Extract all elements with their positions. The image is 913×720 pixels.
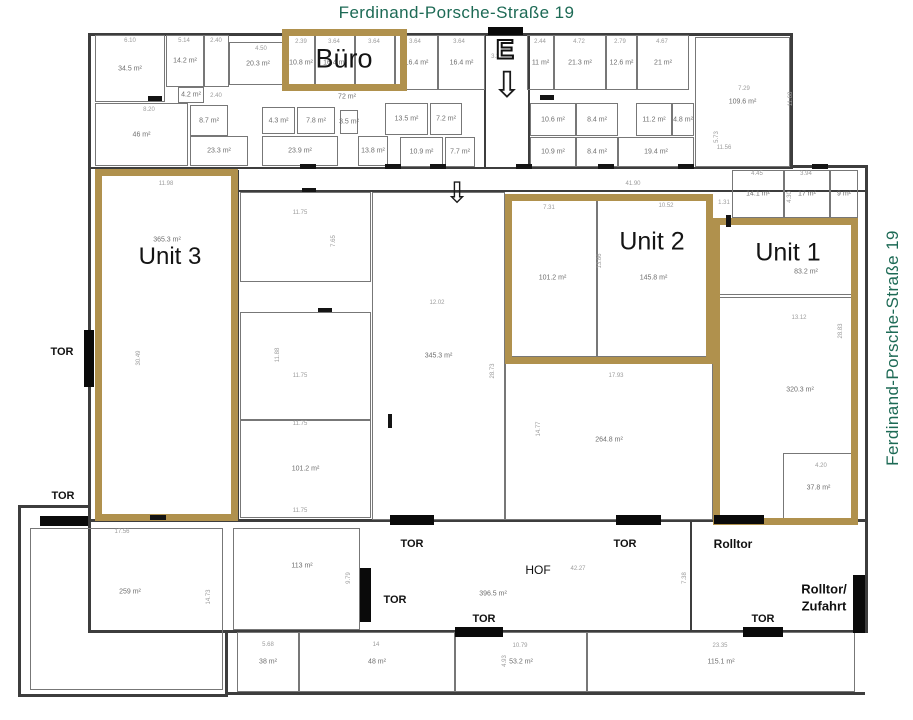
dim-label: 11.56 [717,145,732,151]
wall [18,505,91,508]
wall [18,505,21,697]
room-area-label: 48 m² [368,659,386,666]
dim-label: 11.75 [293,210,308,216]
dim-label: 14 [373,642,380,648]
room-area-label: 3.5 m² [339,119,359,126]
gate [714,515,764,524]
dim-label: 14.77 [536,421,542,436]
room-area-label: 14.2 m² [173,58,197,65]
room [30,528,223,690]
room-area-label: 4.2 m² [181,92,201,99]
wall [225,692,865,695]
dim-label: 11.75 [293,421,308,427]
dim-label: 11.88 [275,348,281,363]
wall [865,165,868,633]
dim-label: 14.73 [206,589,212,604]
room-area-label: 7.7 m² [450,149,470,156]
gate-label: 72 m² [338,94,356,101]
street-label-top: Ferdinand-Porsche-Straße 19 [0,3,913,23]
dim-label: 7.65 [331,235,337,247]
dim-label: 7.29 [738,86,750,92]
room-area-label: 8.7 m² [199,117,219,124]
dim-label: 17.93 [608,373,623,379]
gate-label: TOR [383,594,406,606]
gate-label: TOR [472,613,495,625]
room-area-label: 14.1 m² [746,191,770,198]
gate [743,627,783,637]
room-area-label: 12.6 m² [610,59,634,66]
room-area-label: 10.6 m² [541,116,565,123]
dim-label: 4.93 [502,655,508,667]
room-area-label: 34.5 m² [118,65,142,72]
room-area-label: 101.2 m² [292,466,320,473]
door-mark [300,164,316,169]
dim-label: 7.38 [682,572,688,584]
room-area-label: 38 m² [259,659,277,666]
room-area-label: 8.4 m² [587,149,607,156]
gate-label: TOR [51,490,74,502]
room-area-label: 11 m² [532,59,549,66]
dim-label: 7.31 [543,205,555,211]
door-mark [540,95,554,100]
gate-label: TOR [50,346,73,358]
dim-label: 8.20 [143,107,155,113]
dim-label: 6.10 [124,38,136,44]
dim-label: 13.86 [597,253,603,268]
door-mark [318,308,332,312]
dim-label: 1.31 [718,200,730,206]
room-area-label: 4.8 m² [673,116,693,123]
dim-label: 2.40 [210,38,222,44]
dim-label: 41.90 [625,181,640,187]
dim-label: 4.67 [656,39,668,45]
room-area-label: 53.2 m² [509,659,533,666]
door-mark [678,164,694,169]
door-mark [812,164,828,169]
zone-area-label: 83.2 m² [794,269,818,276]
room-area-label: 46 m² [133,131,151,138]
wall [790,165,868,168]
dim-label: 2.44 [534,39,546,45]
dim-label: 5.73 [714,131,720,143]
dim-label: 11.98 [159,181,174,187]
zone-area-label: 365.3 m² [153,237,181,244]
room-area-label: 23.9 m² [288,148,312,155]
down-arrow-icon: ⇩ [445,180,469,209]
dim-label: 5.68 [262,642,274,648]
down-arrow-icon: ⇩ [492,67,522,103]
gate-label: Rolltor [714,537,753,551]
gate [40,516,88,526]
room [240,312,371,420]
gate-label: TOR [751,613,774,625]
dim-label: 3.94 [800,171,812,177]
gate [853,575,865,633]
room-area-label: 113 m² [291,563,312,570]
dim-label: 10.52 [658,203,673,209]
dim-label: 10.79 [512,643,527,649]
door-mark [302,188,316,192]
room-area-label: 16.4 m² [405,59,429,66]
floor-plan: Ferdinand-Porsche-Straße 19 Ferdinand-Po… [0,0,913,720]
dim-label: 4.30 [787,191,793,203]
street-label-right: Ferdinand-Porsche-Straße 19 [883,230,903,466]
dim-label: 11.75 [293,508,308,514]
room-area-label: 10.9 m² [541,149,565,156]
gate [84,330,94,387]
room-area-label: 7.8 m² [306,117,326,124]
room-area-label: 21.3 m² [568,59,592,66]
door-mark [388,414,392,428]
door-mark [598,164,614,169]
dim-label: 30.49 [136,350,142,365]
gate-label: TOR [613,538,636,550]
room [240,192,371,282]
dim-label: 9.79 [346,572,352,584]
room-area-label: 10.9 m² [410,149,434,156]
wall [18,694,228,697]
zone-label-buero: Büro [315,44,372,75]
door-mark [150,515,166,520]
room-area-label: 109.6 m² [729,99,757,106]
room-area-label: 13.5 m² [395,116,419,123]
room-area-label: 21 m² [654,59,672,66]
dim-label: 2.39 [295,39,307,45]
door-mark [726,215,731,227]
dim-label: 3.64 [453,39,465,45]
dim-label: 28.83 [838,323,844,338]
gate-label: Rolltor/ [801,582,847,597]
room-area-label: 23.3 m² [207,148,231,155]
hof-label: HOF [525,563,550,577]
door-mark [430,164,446,169]
room-area-label: 115.1 m² [707,659,734,666]
gate [360,568,371,622]
room-area-label: 259 m² [119,589,141,596]
dim-label: 3.64 [368,39,380,45]
dim-label: 13.12 [791,315,806,321]
room-area-label: 264.8 m² [595,437,623,444]
wall [225,630,228,695]
dim-label: 2.79 [614,39,626,45]
gate [616,515,661,525]
zone-label-unit-3: Unit 3 [139,243,202,271]
dim-label: 3.64 [409,39,421,45]
gate [455,627,503,637]
dim-label: 4.50 [255,46,267,52]
gate-label: 396.5 m² [479,591,507,598]
room-area-label: 20.3 m² [246,60,270,67]
highlight-zone-unit-2 [505,194,713,364]
room-area-label: 345.3 m² [425,353,453,360]
highlight-zone-unit-3 [95,169,238,521]
dim-label: 11.75 [293,373,308,379]
dim-label: 17.56 [114,529,129,535]
room-area-label: 7.2 m² [436,116,456,123]
dim-label: 4.20 [815,463,827,469]
dim-label: 4.45 [751,171,763,177]
door-mark [516,164,532,169]
room-area-label: 16.4 m² [450,59,474,66]
dim-label: 4.72 [573,39,585,45]
gate-label: TOR [400,538,423,550]
door-mark [148,96,162,101]
room-area-label: 4.3 m² [269,117,289,124]
dim-label: 42.27 [570,566,585,572]
gate [390,515,434,525]
dim-label: 3.64 [328,39,340,45]
room-area-label: 19.4 m² [644,149,668,156]
dim-label: 5.14 [178,38,190,44]
gate-label: Zufahrt [802,599,847,614]
zone-label-unit-2: Unit 2 [619,228,684,257]
room-area-label: 8.4 m² [587,116,607,123]
dim-label: 12.02 [429,300,444,306]
dim-label: 28.73 [490,363,496,378]
wall [690,522,692,630]
room-area-label: 17 m² [798,191,816,198]
dim-label: 2.40 [210,93,222,99]
room [233,528,360,630]
entrance-e-icon: E [496,37,514,64]
room-area-label: 13.8 m² [361,148,385,155]
dim-label: 23.35 [712,643,727,649]
zone-label-unit-1: Unit 1 [755,239,820,268]
room-area-label: 11.2 m² [642,116,665,123]
door-mark [385,164,401,169]
room-area-label: 9 m² [837,191,851,198]
dim-label: 11.68 [788,92,794,107]
